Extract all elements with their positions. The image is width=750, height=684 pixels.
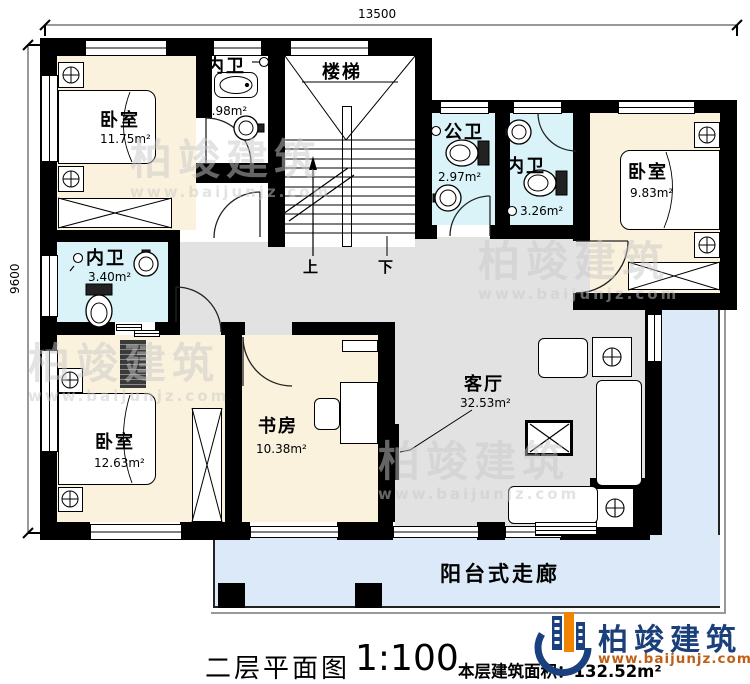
plan-title: 二层平面图 [205, 648, 350, 684]
bedroom1-label: 卧室 [100, 106, 140, 132]
stairs-down-label: 下 [378, 256, 393, 277]
bedroom3-area: 12.63m² [94, 456, 145, 470]
leader-line [400, 410, 472, 452]
dimension-left: 9600 [8, 264, 22, 294]
living-label: 客厅 [464, 370, 504, 396]
bath3-label: 内卫 [86, 244, 126, 270]
public-bath-label: 公卫 [444, 118, 484, 144]
bedroom2-area: 9.83m² [630, 186, 673, 200]
bedroom1-area: 11.75m² [100, 132, 151, 146]
balcony-label: 阳台式走廊 [440, 558, 560, 588]
company-logo-icon [526, 608, 598, 680]
floor-plan-sheet: 卧室 11.75m² 内卫 2.98m² 楼梯 上 下 公卫 2.97m² 内卫… [0, 0, 750, 684]
bathtub-inner [220, 77, 252, 94]
living-area: 32.53m² [460, 396, 511, 410]
plan-scale: 1:100 [355, 638, 459, 679]
plan-linework-overlay [0, 0, 750, 684]
door-swings [176, 113, 628, 386]
bath1-label: 内卫 [206, 52, 246, 78]
public-bath-area: 2.97m² [438, 170, 481, 184]
bath1-area: 2.98m² [204, 104, 247, 118]
company-logo-website: www.baijunjz.com [598, 651, 750, 667]
bath2-area: 3.26m² [520, 204, 563, 218]
study-label: 书房 [258, 412, 298, 438]
study-area: 10.38m² [256, 442, 307, 456]
bedroom3-label: 卧室 [95, 428, 135, 454]
floor-drain-icon [70, 58, 517, 272]
stair-direction-arrow [283, 156, 387, 256]
bath3-area: 3.40m² [88, 270, 131, 284]
dimension-top: 13500 [358, 7, 396, 21]
table-crosshair-icon [603, 348, 624, 517]
bedroom2-label: 卧室 [628, 158, 668, 184]
bath2-label: 内卫 [506, 152, 546, 178]
stairs-label: 楼梯 [322, 58, 362, 84]
coffee-table-hatch [530, 424, 569, 452]
stairs-up-label: 上 [303, 256, 318, 277]
lamp-icon [62, 67, 715, 507]
